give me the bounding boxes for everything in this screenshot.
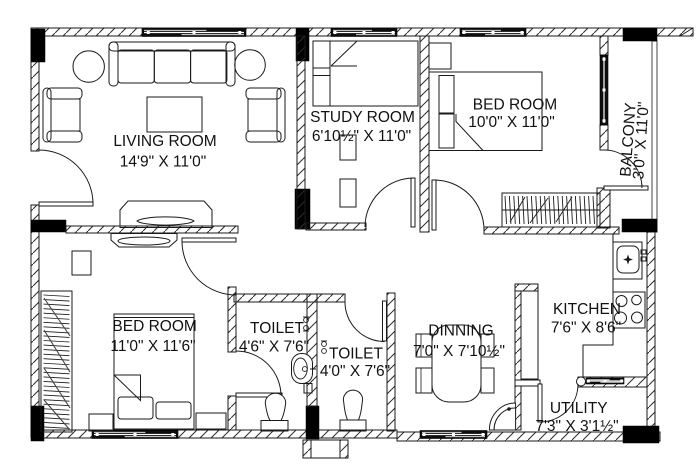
svg-text:10'0" X 11'0": 10'0" X 11'0"	[468, 114, 554, 131]
svg-text:4'0" X 7'6": 4'0" X 7'6"	[320, 363, 390, 380]
svg-text:14'9" X 11'0": 14'9" X 11'0"	[120, 154, 206, 171]
svg-text:TOILET: TOILET	[250, 320, 305, 337]
svg-text:UTILITY: UTILITY	[550, 400, 608, 417]
svg-text:BED ROOM: BED ROOM	[112, 318, 196, 335]
svg-text:DINNING: DINNING	[428, 323, 493, 340]
svg-text:7'3" X 3'1½": 7'3" X 3'1½"	[535, 418, 618, 435]
svg-text:LIVING ROOM: LIVING ROOM	[113, 133, 216, 150]
svg-text:7'6" X 8'6": 7'6" X 8'6"	[551, 320, 621, 337]
svg-text:11'0" X 11'6": 11'0" X 11'6"	[110, 338, 195, 355]
svg-text:KITCHEN: KITCHEN	[553, 301, 621, 318]
svg-text:7'0" X 7'10½": 7'0" X 7'10½"	[413, 343, 505, 360]
svg-text:4'6" X 7'6": 4'6" X 7'6"	[239, 339, 309, 356]
svg-text:TOILET: TOILET	[329, 346, 384, 363]
svg-text:BED ROOM: BED ROOM	[473, 97, 557, 114]
svg-text:6'10½" X 11'0": 6'10½" X 11'0"	[312, 128, 411, 145]
svg-text:STUDY ROOM: STUDY ROOM	[310, 109, 415, 126]
